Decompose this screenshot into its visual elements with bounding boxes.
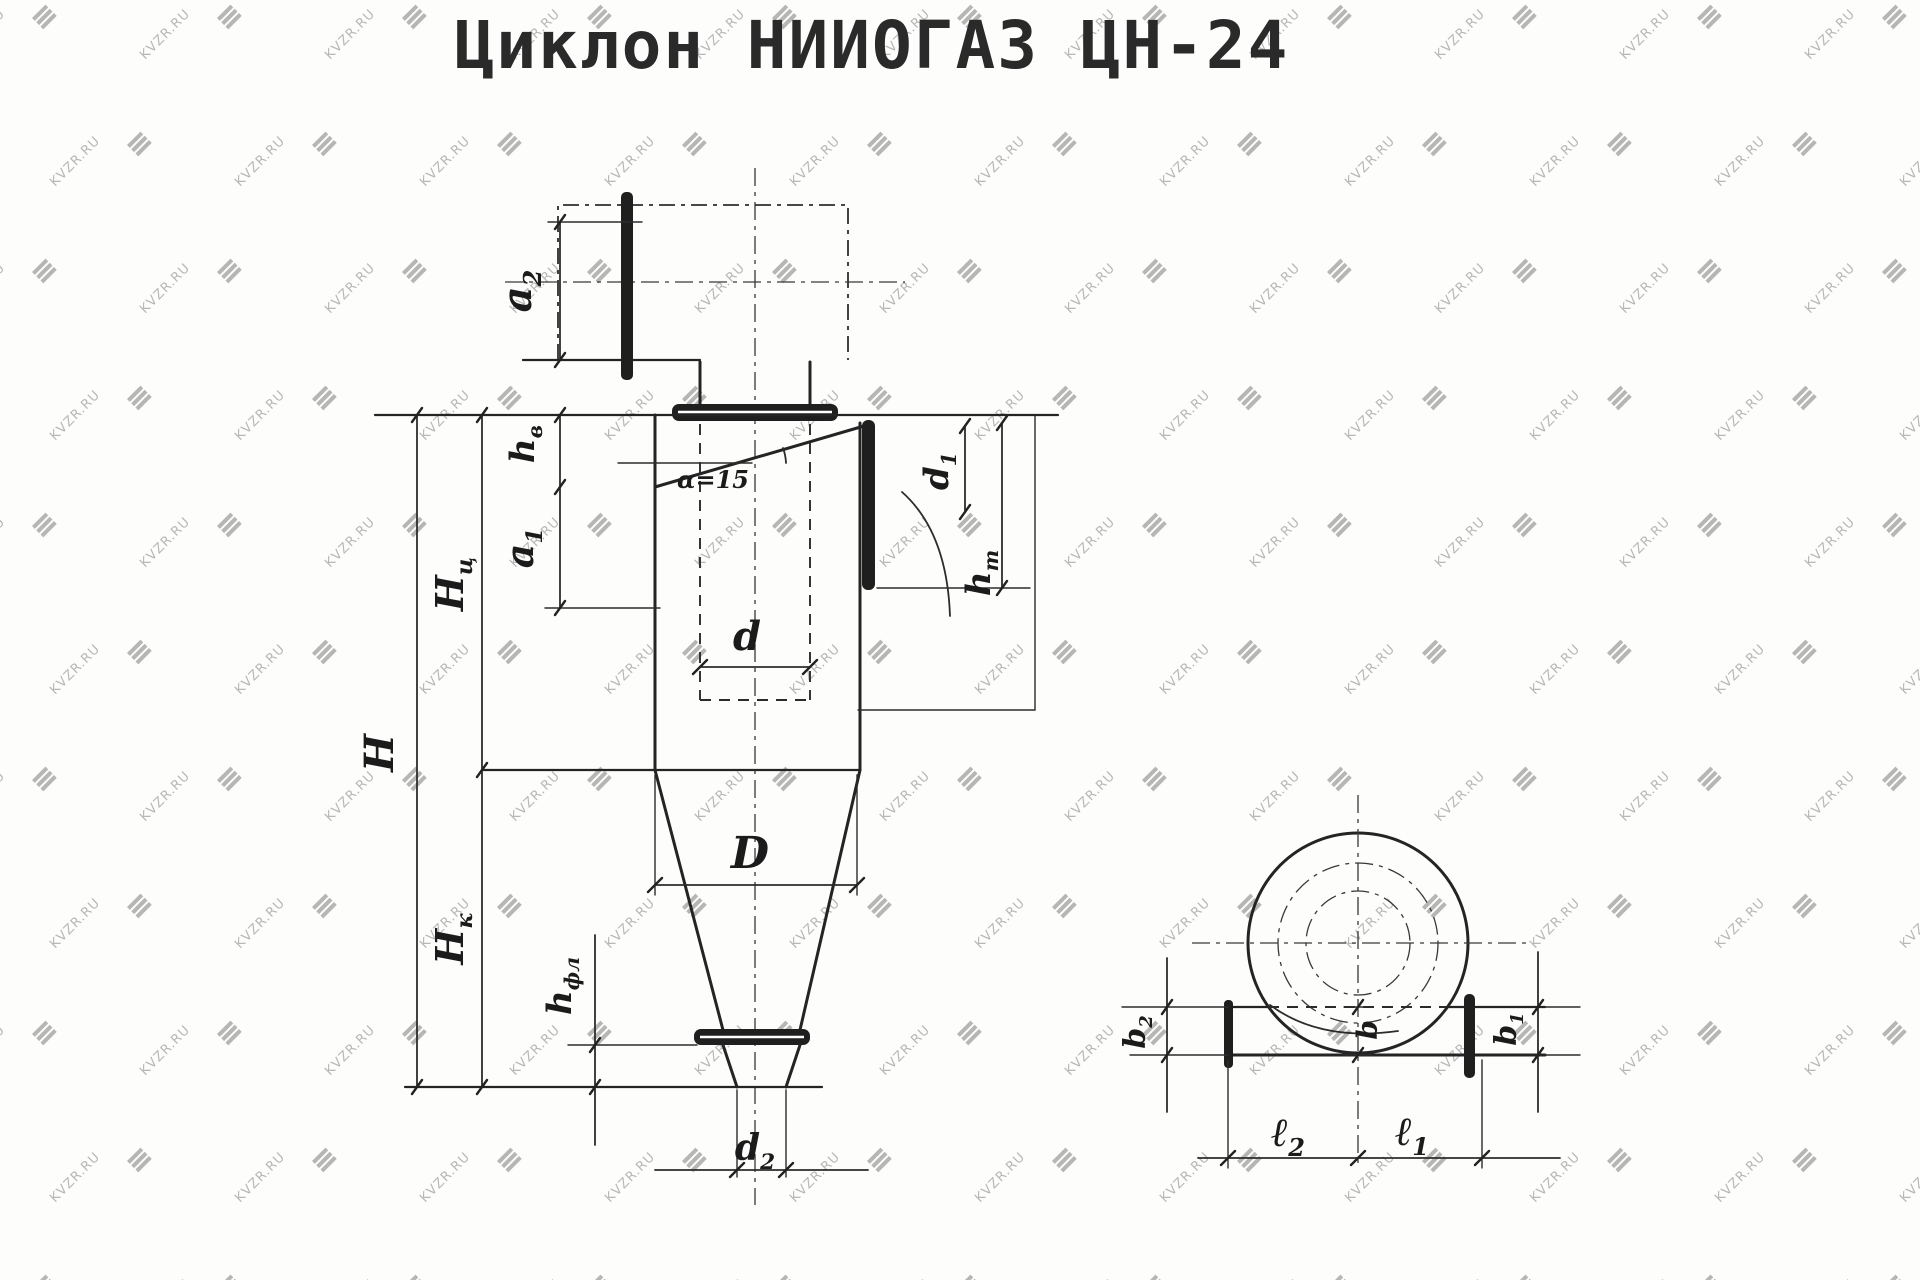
watermark-icon	[32, 259, 57, 284]
watermark-icon	[1327, 1275, 1352, 1280]
watermark-text: KVZR.RU	[1712, 642, 1768, 698]
watermark-layer: KVZR.RUKVZR.RUKVZR.RUKVZR.RUKVZR.RUKVZR.…	[0, 5, 1920, 1280]
watermark-text: KVZR.RU	[1802, 1023, 1858, 1079]
watermark-icon	[1512, 5, 1537, 30]
watermark-icon	[32, 5, 57, 30]
watermark-text: KVZR.RU	[1062, 769, 1118, 825]
scanned-drawing-page: KVZR.RUKVZR.RUKVZR.RUKVZR.RUKVZR.RUKVZR.…	[0, 0, 1920, 1280]
watermark-text: KVZR.RU	[877, 1023, 933, 1079]
watermark-icon	[32, 767, 57, 792]
labels: a2 hв a1 Нц Н Нк hфл d1 hт d D α=15 d2 b…	[356, 270, 1528, 1175]
watermark-text: KVZR.RU	[507, 1023, 563, 1079]
watermark-icon	[587, 1275, 612, 1280]
watermark-text: KVZR.RU	[322, 769, 378, 825]
watermark-text: KVZR.RU	[0, 1277, 8, 1280]
label-Hk: Нк	[427, 913, 478, 966]
watermark-icon	[1697, 767, 1722, 792]
watermark-icon	[682, 894, 707, 919]
watermark-icon	[1792, 132, 1817, 157]
watermark-icon	[127, 640, 152, 665]
watermark-icon	[1237, 640, 1262, 665]
watermark-icon	[1882, 513, 1907, 538]
watermark-text: KVZR.RU	[1527, 134, 1583, 190]
watermark-text: KVZR.RU	[322, 515, 378, 571]
watermark-text: KVZR.RU	[0, 1023, 8, 1079]
watermark-icon	[312, 132, 337, 157]
watermark-text: KVZR.RU	[1802, 515, 1858, 571]
watermark-text: KVZR.RU	[602, 134, 658, 190]
technical-drawing-canvas: KVZR.RUKVZR.RUKVZR.RUKVZR.RUKVZR.RUKVZR.…	[0, 0, 1920, 1280]
watermark-icon	[682, 640, 707, 665]
watermark-text: KVZR.RU	[1342, 642, 1398, 698]
label-d2: d2	[735, 1127, 775, 1175]
watermark-icon	[1052, 640, 1077, 665]
watermark-icon	[32, 1021, 57, 1046]
watermark-text: KVZR.RU	[1157, 642, 1213, 698]
watermark-text: KVZR.RU	[47, 896, 103, 952]
watermark-text: KVZR.RU	[1802, 261, 1858, 317]
watermark-text: KVZR.RU	[232, 642, 288, 698]
watermark-text: KVZR.RU	[1712, 388, 1768, 444]
duct-flange-right	[1464, 994, 1475, 1078]
watermark-icon	[127, 132, 152, 157]
watermark-text: KVZR.RU	[602, 896, 658, 952]
watermark-text: KVZR.RU	[1617, 261, 1673, 317]
watermark-text: KVZR.RU	[1432, 769, 1488, 825]
inlet-flange-plate	[862, 420, 875, 590]
label-d: d	[733, 613, 761, 660]
watermark-text: KVZR.RU	[137, 769, 193, 825]
watermark-text: KVZR.RU	[232, 388, 288, 444]
watermark-icon	[1882, 1275, 1907, 1280]
watermark-text: KVZR.RU	[1802, 769, 1858, 825]
watermark-icon	[312, 1148, 337, 1173]
watermark-icon	[1697, 5, 1722, 30]
watermark-text: KVZR.RU	[1247, 1023, 1303, 1079]
watermark-text: KVZR.RU	[417, 642, 473, 698]
watermark-text: KVZR.RU	[1897, 388, 1920, 444]
watermark-text: KVZR.RU	[47, 388, 103, 444]
watermark-icon	[1422, 386, 1447, 411]
watermark-text: KVZR.RU	[1617, 515, 1673, 571]
watermark-icon	[772, 259, 797, 284]
watermark-icon	[1142, 513, 1167, 538]
watermark-text: KVZR.RU	[877, 515, 933, 571]
watermark-text: KVZR.RU	[507, 769, 563, 825]
watermark-icon	[217, 1021, 242, 1046]
label-a1: a1	[497, 528, 548, 569]
watermark-text: KVZR.RU	[1527, 642, 1583, 698]
watermark-text: KVZR.RU	[0, 769, 8, 825]
watermark-text: KVZR.RU	[1432, 1277, 1488, 1280]
watermark-text: KVZR.RU	[1432, 261, 1488, 317]
watermark-text: KVZR.RU	[1247, 515, 1303, 571]
watermark-icon	[1512, 259, 1537, 284]
watermark-text: KVZR.RU	[1712, 134, 1768, 190]
watermark-text: KVZR.RU	[1712, 1150, 1768, 1206]
cone-right	[800, 770, 860, 1030]
watermark-icon	[402, 259, 427, 284]
watermark-icon	[1237, 1148, 1262, 1173]
watermark-icon	[497, 894, 522, 919]
watermark-icon	[1882, 259, 1907, 284]
watermark-text: KVZR.RU	[137, 1277, 193, 1280]
watermark-text: KVZR.RU	[1062, 515, 1118, 571]
watermark-icon	[127, 1148, 152, 1173]
watermark-text: KVZR.RU	[322, 1277, 378, 1280]
watermark-text: KVZR.RU	[1247, 261, 1303, 317]
watermark-icon	[587, 259, 612, 284]
label-hv: hв	[503, 425, 547, 463]
label-b1: b1	[1489, 1012, 1528, 1046]
watermark-text: KVZR.RU	[877, 261, 933, 317]
watermark-icon	[312, 894, 337, 919]
watermark-icon	[867, 640, 892, 665]
watermark-text: KVZR.RU	[137, 515, 193, 571]
watermark-icon	[127, 386, 152, 411]
watermark-icon	[1792, 640, 1817, 665]
watermark-icon	[1607, 1148, 1632, 1173]
label-l1: ℓ1	[1395, 1108, 1429, 1161]
watermark-text: KVZR.RU	[1062, 1277, 1118, 1280]
watermark-icon	[1237, 132, 1262, 157]
watermark-text: KVZR.RU	[787, 896, 843, 952]
watermark-icon	[312, 386, 337, 411]
watermark-icon	[497, 132, 522, 157]
watermark-icon	[312, 640, 337, 665]
watermark-icon	[1607, 640, 1632, 665]
watermark-icon	[1882, 5, 1907, 30]
watermark-icon	[1327, 767, 1352, 792]
watermark-text: KVZR.RU	[1247, 1277, 1303, 1280]
watermark-text: KVZR.RU	[877, 769, 933, 825]
watermark-text: KVZR.RU	[47, 1150, 103, 1206]
watermark-icon	[1882, 1021, 1907, 1046]
watermark-text: KVZR.RU	[787, 134, 843, 190]
watermark-text: KVZR.RU	[507, 1277, 563, 1280]
watermark-text: KVZR.RU	[47, 642, 103, 698]
watermark-text: KVZR.RU	[232, 896, 288, 952]
watermark-icon	[1327, 513, 1352, 538]
watermark-icon	[1052, 386, 1077, 411]
watermark-text: KVZR.RU	[1432, 515, 1488, 571]
watermark-text: KVZR.RU	[417, 1150, 473, 1206]
watermark-icon	[1512, 767, 1537, 792]
watermark-icon	[1697, 1275, 1722, 1280]
watermark-icon	[1142, 767, 1167, 792]
watermark-icon	[1607, 894, 1632, 919]
watermark-icon	[587, 1021, 612, 1046]
watermark-text: KVZR.RU	[692, 261, 748, 317]
watermark-text: KVZR.RU	[972, 1150, 1028, 1206]
watermark-text: KVZR.RU	[692, 1277, 748, 1280]
watermark-icon	[217, 1275, 242, 1280]
watermark-text: KVZR.RU	[417, 134, 473, 190]
watermark-icon	[1607, 386, 1632, 411]
watermark-text: KVZR.RU	[0, 7, 8, 63]
duct-flange-left	[1224, 1000, 1233, 1068]
watermark-icon	[867, 386, 892, 411]
watermark-text: KVZR.RU	[787, 642, 843, 698]
neck-right	[786, 1045, 800, 1087]
watermark-icon	[1052, 1148, 1077, 1173]
watermark-text: KVZR.RU	[137, 7, 193, 63]
watermark-icon	[957, 1021, 982, 1046]
watermark-icon	[1052, 894, 1077, 919]
watermark-icon	[867, 1148, 892, 1173]
watermark-icon	[1882, 767, 1907, 792]
watermark-text: KVZR.RU	[602, 642, 658, 698]
watermark-text: KVZR.RU	[1617, 7, 1673, 63]
watermark-text: KVZR.RU	[1897, 134, 1920, 190]
top-view	[1122, 795, 1580, 1168]
watermark-icon	[32, 513, 57, 538]
label-b: b	[1351, 1020, 1384, 1040]
watermark-icon	[32, 1275, 57, 1280]
watermark-text: KVZR.RU	[972, 896, 1028, 952]
watermark-text: KVZR.RU	[1342, 134, 1398, 190]
watermark-icon	[1142, 1275, 1167, 1280]
watermark-text: KVZR.RU	[137, 261, 193, 317]
watermark-text: KVZR.RU	[1062, 261, 1118, 317]
watermark-icon	[867, 132, 892, 157]
watermark-icon	[497, 1148, 522, 1173]
outlet-flange-plate	[621, 192, 633, 380]
watermark-text: KVZR.RU	[1897, 1150, 1920, 1206]
watermark-icon	[127, 894, 152, 919]
watermark-icon	[772, 1275, 797, 1280]
watermark-icon	[1422, 894, 1447, 919]
watermark-text: KVZR.RU	[0, 515, 8, 571]
watermark-text: KVZR.RU	[1617, 769, 1673, 825]
label-d1: d1	[917, 452, 961, 490]
label-D: D	[729, 828, 769, 879]
watermark-text: KVZR.RU	[322, 261, 378, 317]
watermark-text: KVZR.RU	[137, 1023, 193, 1079]
watermark-icon	[1327, 5, 1352, 30]
watermark-icon	[217, 5, 242, 30]
watermark-icon	[1512, 1275, 1537, 1280]
watermark-icon	[1237, 386, 1262, 411]
watermark-text: KVZR.RU	[787, 1150, 843, 1206]
watermark-icon	[1422, 132, 1447, 157]
watermark-text: KVZR.RU	[1802, 1277, 1858, 1280]
watermark-icon	[1052, 132, 1077, 157]
label-l2: ℓ2	[1271, 1109, 1305, 1162]
watermark-text: KVZR.RU	[1342, 388, 1398, 444]
watermark-text: KVZR.RU	[1247, 769, 1303, 825]
watermark-text: KVZR.RU	[1802, 7, 1858, 63]
watermark-text: KVZR.RU	[232, 134, 288, 190]
watermark-icon	[1422, 640, 1447, 665]
watermark-text: KVZR.RU	[0, 261, 8, 317]
watermark-icon	[867, 894, 892, 919]
watermark-text: KVZR.RU	[602, 1150, 658, 1206]
watermark-icon	[1142, 259, 1167, 284]
watermark-text: KVZR.RU	[322, 1023, 378, 1079]
watermark-text: KVZR.RU	[1897, 896, 1920, 952]
watermark-icon	[217, 513, 242, 538]
label-Hc: Нц	[427, 557, 478, 612]
watermark-text: KVZR.RU	[1617, 1023, 1673, 1079]
watermark-icon	[402, 5, 427, 30]
watermark-icon	[1697, 1021, 1722, 1046]
watermark-icon	[957, 767, 982, 792]
watermark-text: KVZR.RU	[1157, 134, 1213, 190]
watermark-icon	[957, 1275, 982, 1280]
watermark-text: KVZR.RU	[1432, 1023, 1488, 1079]
watermark-icon	[1607, 132, 1632, 157]
watermark-icon	[1792, 894, 1817, 919]
watermark-text: KVZR.RU	[692, 769, 748, 825]
watermark-text: KVZR.RU	[1432, 7, 1488, 63]
watermark-icon	[1792, 1148, 1817, 1173]
watermark-icon	[402, 1021, 427, 1046]
label-b2: b2	[1118, 1015, 1157, 1049]
label-ht: hт	[959, 550, 1003, 596]
watermark-icon	[1697, 259, 1722, 284]
label-hfl: hфл	[540, 957, 584, 1015]
watermark-icon	[957, 259, 982, 284]
label-a2: a2	[494, 270, 547, 313]
page-title: Циклон НИИОГАЗ ЦН-24	[455, 7, 1290, 84]
watermark-text: KVZR.RU	[1897, 642, 1920, 698]
watermark-icon	[682, 132, 707, 157]
watermark-icon	[402, 1275, 427, 1280]
watermark-text: KVZR.RU	[1527, 388, 1583, 444]
label-alpha: α=15	[677, 465, 749, 494]
watermark-text: KVZR.RU	[972, 134, 1028, 190]
watermark-icon	[1792, 386, 1817, 411]
watermark-icon	[497, 640, 522, 665]
watermark-text: KVZR.RU	[47, 134, 103, 190]
watermark-icon	[402, 513, 427, 538]
watermark-icon	[682, 1148, 707, 1173]
watermark-icon	[1512, 513, 1537, 538]
watermark-icon	[772, 513, 797, 538]
watermark-text: KVZR.RU	[972, 642, 1028, 698]
watermark-text: KVZR.RU	[232, 1150, 288, 1206]
watermark-icon	[217, 259, 242, 284]
watermark-icon	[497, 386, 522, 411]
watermark-icon	[1697, 513, 1722, 538]
leader-arc	[902, 492, 950, 616]
watermark-icon	[587, 513, 612, 538]
watermark-text: KVZR.RU	[877, 1277, 933, 1280]
watermark-text: KVZR.RU	[1062, 1023, 1118, 1079]
label-H: Н	[356, 733, 403, 773]
watermark-icon	[1327, 259, 1352, 284]
watermark-icon	[402, 767, 427, 792]
watermark-text: KVZR.RU	[1617, 1277, 1673, 1280]
watermark-text: KVZR.RU	[1157, 388, 1213, 444]
watermark-text: KVZR.RU	[322, 7, 378, 63]
watermark-text: KVZR.RU	[1712, 896, 1768, 952]
watermark-text: KVZR.RU	[1527, 896, 1583, 952]
watermark-icon	[217, 767, 242, 792]
